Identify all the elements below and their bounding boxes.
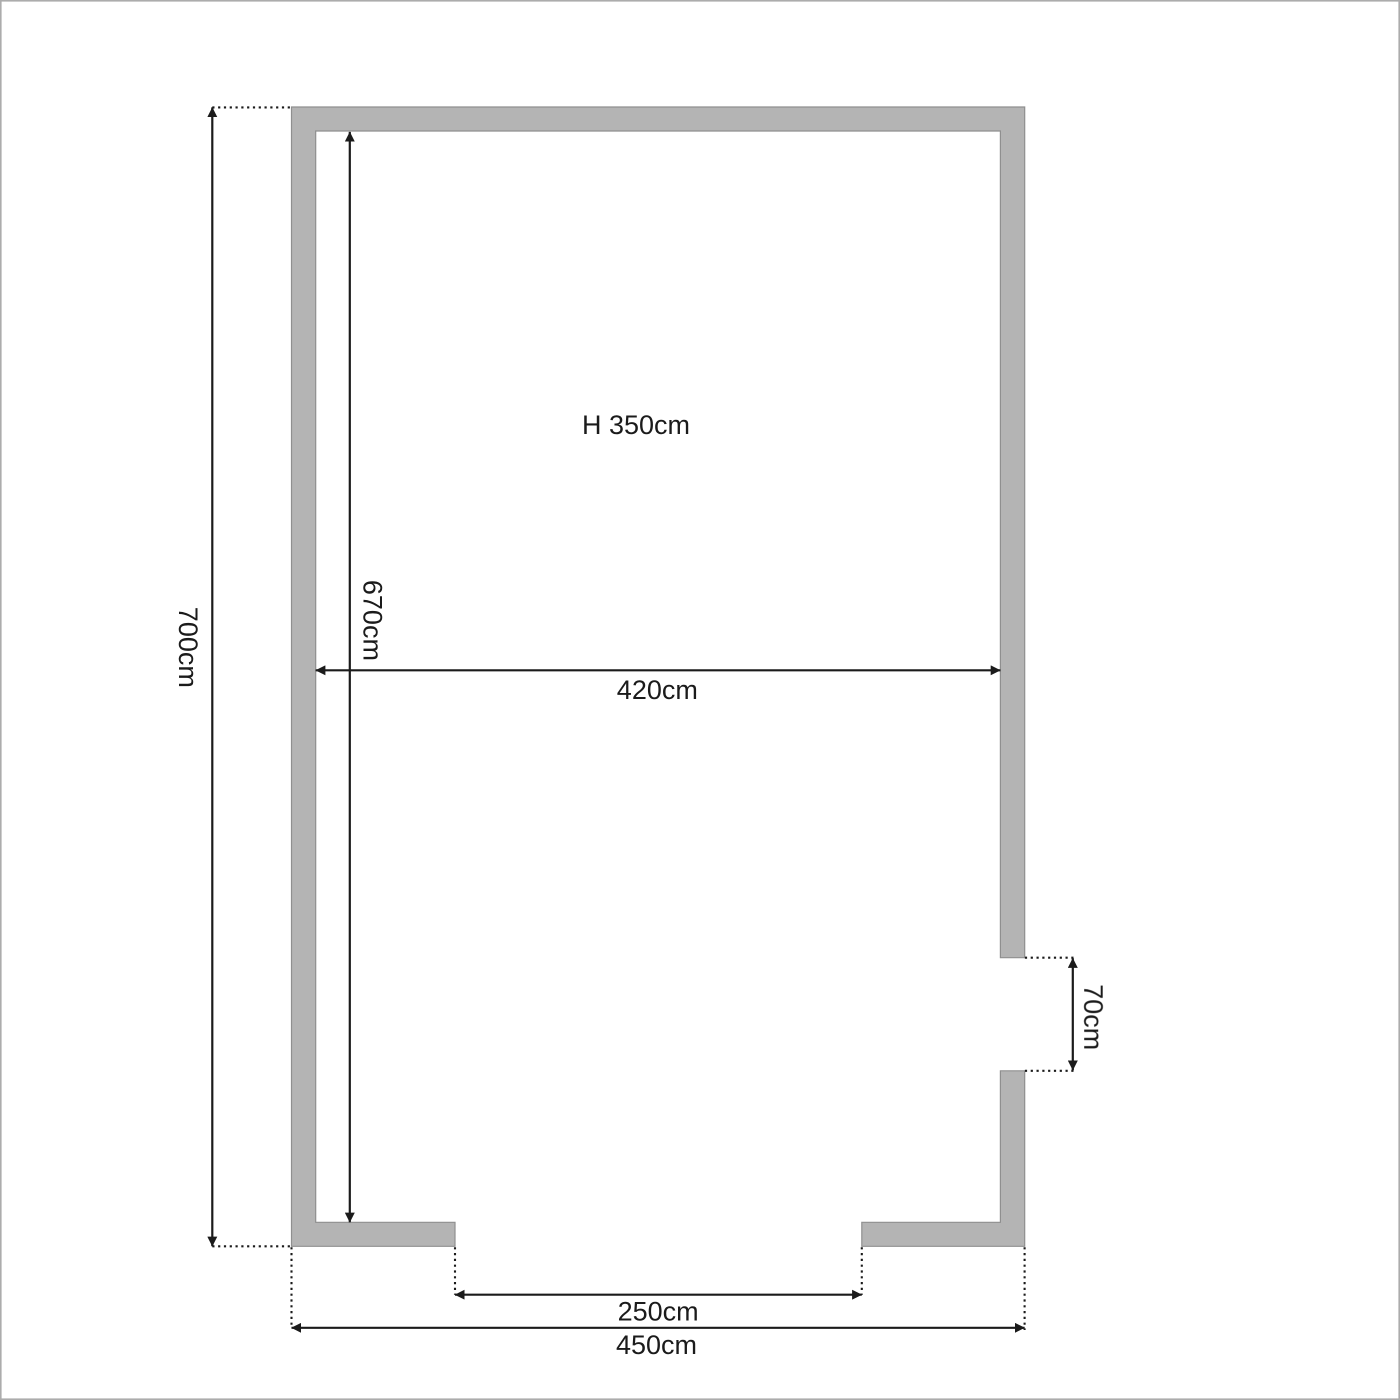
- svg-text:670cm: 670cm: [358, 580, 388, 661]
- svg-text:450cm: 450cm: [616, 1330, 697, 1360]
- svg-text:H 350cm: H 350cm: [582, 410, 690, 440]
- svg-text:420cm: 420cm: [617, 675, 698, 705]
- svg-text:250cm: 250cm: [618, 1297, 699, 1327]
- svg-text:700cm: 700cm: [173, 607, 203, 688]
- svg-text:70cm: 70cm: [1078, 984, 1108, 1050]
